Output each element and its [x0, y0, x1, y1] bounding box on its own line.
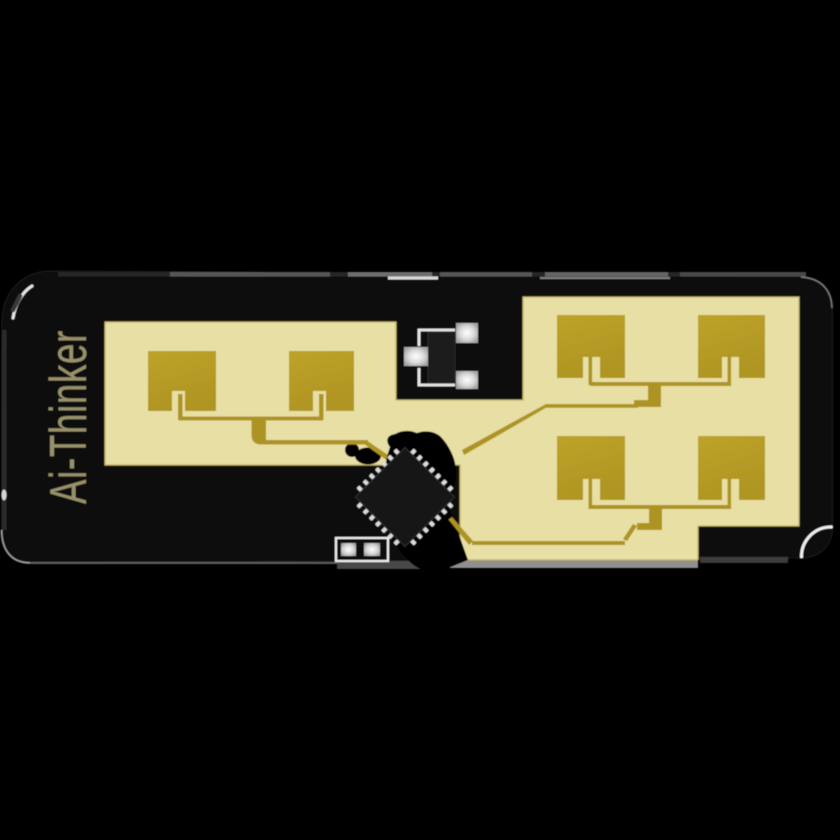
- svg-text:Ai-Thinker: Ai-Thinker: [39, 330, 98, 504]
